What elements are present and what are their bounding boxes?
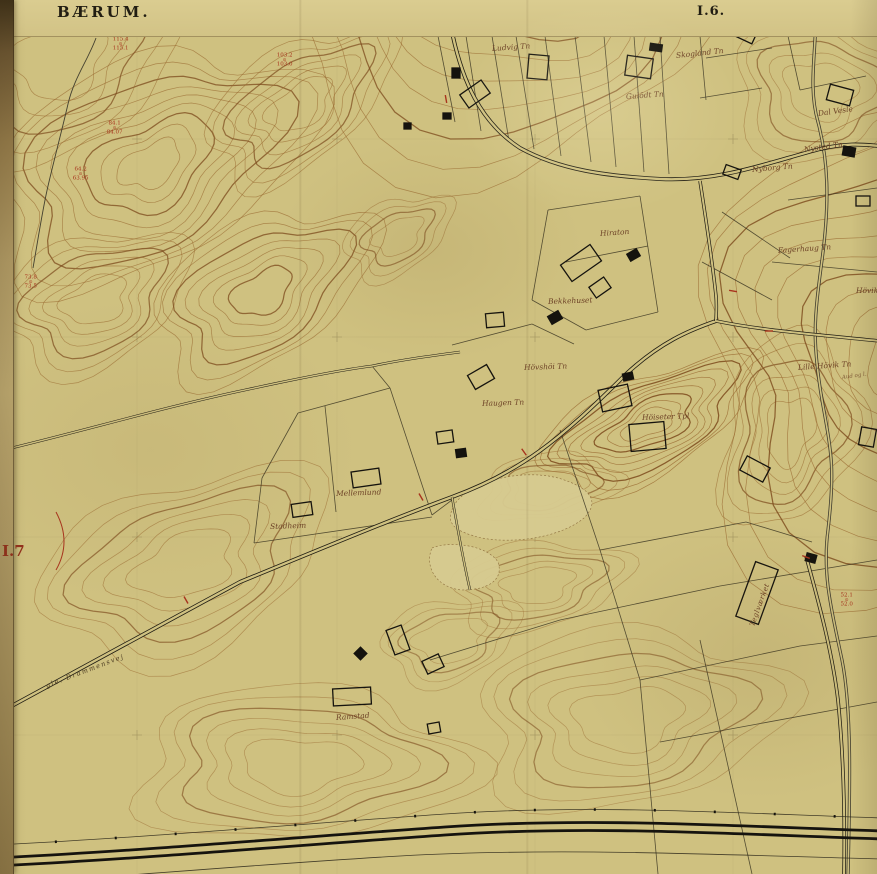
grid-cross [728,134,738,144]
road-casing [0,366,372,452]
ponds-group [430,475,592,590]
building [291,502,313,518]
contour-line [67,103,235,228]
grid-cross [332,730,342,740]
contour-line [199,248,323,337]
field-boundary [325,406,336,512]
building [351,468,381,488]
field-boundary [390,388,432,515]
contour-line [204,24,403,197]
contour-line [17,248,169,358]
field-boundary [430,620,560,660]
grid-cross [530,730,540,740]
field-boundary [640,680,658,874]
contour-line [757,41,877,141]
contour-line [7,240,183,372]
field-boundaries-group [254,36,877,874]
building [455,448,466,457]
field-boundary [746,522,812,542]
field-boundary [706,48,772,58]
red-survey-tick [729,290,737,291]
pond-outline [450,475,592,540]
building [527,54,549,80]
field-boundary [722,212,790,258]
building [354,647,367,660]
grid-cross [530,332,540,342]
railway-track [0,822,877,858]
grid-cross [332,332,342,342]
building [485,312,504,328]
field-boundary [586,312,658,330]
contour-line [173,229,357,365]
field-boundary [516,36,534,149]
road-fill [0,366,372,452]
contour-line [36,87,278,252]
field-boundary [700,88,762,98]
contour-line [82,499,270,626]
building [561,244,602,281]
contour-line [228,265,292,315]
grid-cross [132,730,142,740]
sheet-number: I.6. [697,4,725,19]
railway-fence [0,852,877,874]
road-fill [700,181,716,321]
contour-line [498,567,577,604]
building [427,722,441,734]
contour-line [42,266,140,335]
grid-cross [728,532,738,542]
red-survey-tick [184,597,188,604]
contour-line [548,676,711,765]
red-survey-tick [419,494,423,501]
contour-line [540,354,753,491]
building [589,277,611,298]
road-fill [372,352,460,366]
field-boundary [560,586,720,620]
contour-line [84,113,215,216]
building [443,113,451,119]
field-boundary [532,324,574,344]
contour-line [225,729,392,807]
contour-line [245,739,365,797]
contour-line [398,612,500,673]
building [842,146,855,157]
railway-group [0,809,877,874]
field-boundary [640,196,658,312]
contour-line [117,137,180,190]
railway-track [0,830,877,866]
contour-line [735,190,877,551]
contour-line [769,53,877,133]
contour-line [783,63,861,122]
building [627,249,641,261]
building [404,123,411,129]
contour-line [213,33,390,183]
field-boundary [548,196,640,210]
contour-line [510,653,763,787]
survey-grid-group [10,36,877,874]
red-survey-tick [522,449,527,456]
building [622,372,633,381]
field-boundary [298,388,390,413]
contour-line [182,708,448,824]
building [826,84,853,106]
adjacent-sheet-number: I.7 [2,542,25,560]
contour-line [698,107,877,613]
roads-group [0,32,877,874]
field-boundary [800,76,866,90]
contour-line [207,719,421,817]
map-title: BÆRUM. [57,3,151,21]
building [650,43,663,52]
field-boundary [600,550,640,680]
map-stage: BÆRUM. I.6. I.7 Ludvig TnSkogland TnGulö… [0,0,877,874]
contour-line [727,343,863,513]
contour-line [409,618,487,663]
top-margin: BÆRUM. I.6. [0,0,877,37]
contour-line [101,124,196,203]
field-boundary [600,522,746,550]
contour-line [719,168,877,568]
building [625,55,654,78]
field-boundary [772,262,877,272]
contour-line [125,529,231,598]
field-boundary [372,366,390,388]
building [333,687,372,706]
contour-line [480,623,809,815]
road-fill [806,556,844,874]
streams-group [33,0,850,874]
contour-line [369,217,424,257]
field-boundary [788,188,877,200]
field-boundary [545,36,561,156]
grid-cross [728,332,738,342]
field-boundary [532,210,548,300]
field-boundary [254,478,262,543]
red-survey-tick [445,95,446,103]
field-boundary [262,413,298,478]
building [856,196,870,206]
building [467,365,494,390]
left-page-edge [0,0,14,874]
field-boundary [604,36,616,167]
map-canvas [0,0,877,874]
field-boundary [575,36,591,162]
building [548,311,563,325]
contour-line [570,687,686,754]
field-boundary [660,36,669,174]
contour-line [163,220,373,380]
grid-cross [132,332,142,342]
building [452,68,460,78]
field-boundary [438,36,455,122]
field-boundary [640,646,800,680]
contour-line [185,239,340,350]
building [436,430,454,444]
